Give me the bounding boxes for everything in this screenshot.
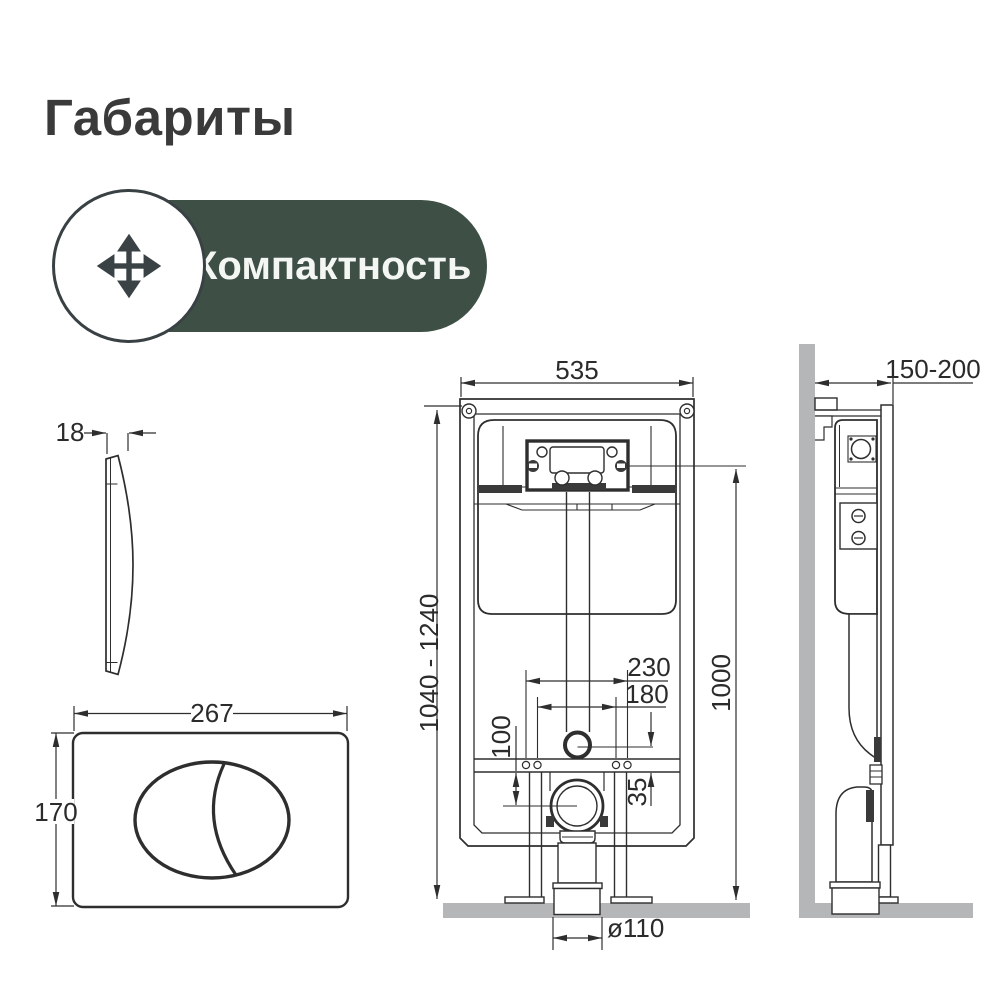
badge-label: Компактность — [193, 244, 471, 289]
foot-plate-right — [611, 897, 652, 903]
dim-install-height-label: 1000 — [706, 654, 736, 712]
support-leg-left — [505, 772, 544, 903]
dim-fixing-spacing-inner: 180 — [538, 679, 669, 758]
fixing-crossbar — [474, 759, 680, 772]
frame-rail-side — [881, 405, 893, 845]
dim-inlet-offset-label: 35 — [622, 778, 652, 807]
dim-plate-height-label: 170 — [34, 797, 77, 827]
corner-screw-left — [462, 404, 476, 418]
dim-drain-diameter: ø110 — [553, 913, 664, 950]
dim-plate-thickness: 18 — [56, 417, 156, 454]
tank-seam-right — [632, 485, 675, 493]
dim-frame-height-range-label: 1040 - 1240 — [414, 594, 444, 733]
technical-drawing: 18 267 170 — [0, 0, 1000, 1000]
flush-plate-front-view: 267 170 — [34, 698, 348, 907]
move-arrows-icon — [77, 214, 181, 318]
badge-icon-circle — [52, 189, 206, 343]
dim-frame-height-range: 1040 - 1240 — [414, 406, 462, 899]
floor-side — [799, 903, 973, 918]
dim-plate-thickness-label: 18 — [56, 417, 85, 447]
frame-side-view: 150-200 — [799, 344, 981, 918]
frame-front-view: 535 1040 - 1240 1000 230 180 — [414, 355, 750, 950]
water-inlet-port — [565, 733, 653, 758]
tank-seam-left — [479, 485, 522, 493]
foot-plate-left — [505, 897, 544, 903]
dim-frame-width-label: 535 — [555, 355, 598, 385]
flush-button-oval — [135, 762, 289, 878]
dim-plate-width-label: 267 — [190, 698, 233, 728]
corner-screw-right — [680, 404, 694, 418]
dim-outlet-drop-label: 100 — [486, 715, 516, 758]
flush-plate-side-view: 18 — [56, 417, 156, 675]
drain-pipe — [553, 843, 602, 915]
dim-fixing-spacing-outer-label: 230 — [627, 652, 670, 682]
wall — [799, 344, 815, 904]
dim-outlet-drop: 100 — [486, 715, 516, 805]
dim-plate-width: 267 — [74, 698, 347, 731]
drain-side — [830, 614, 882, 914]
dim-plate-height: 170 — [34, 733, 77, 906]
dim-frame-width: 535 — [461, 355, 693, 397]
dim-frame-depth: 150-200 — [815, 354, 981, 404]
dim-frame-depth-label: 150-200 — [885, 354, 980, 384]
dim-fixing-spacing-inner-label: 180 — [625, 679, 668, 709]
cistern-side — [835, 420, 877, 614]
access-panel — [527, 441, 628, 490]
leg-side — [879, 845, 891, 897]
dim-drain-diameter-label: ø110 — [607, 913, 664, 943]
